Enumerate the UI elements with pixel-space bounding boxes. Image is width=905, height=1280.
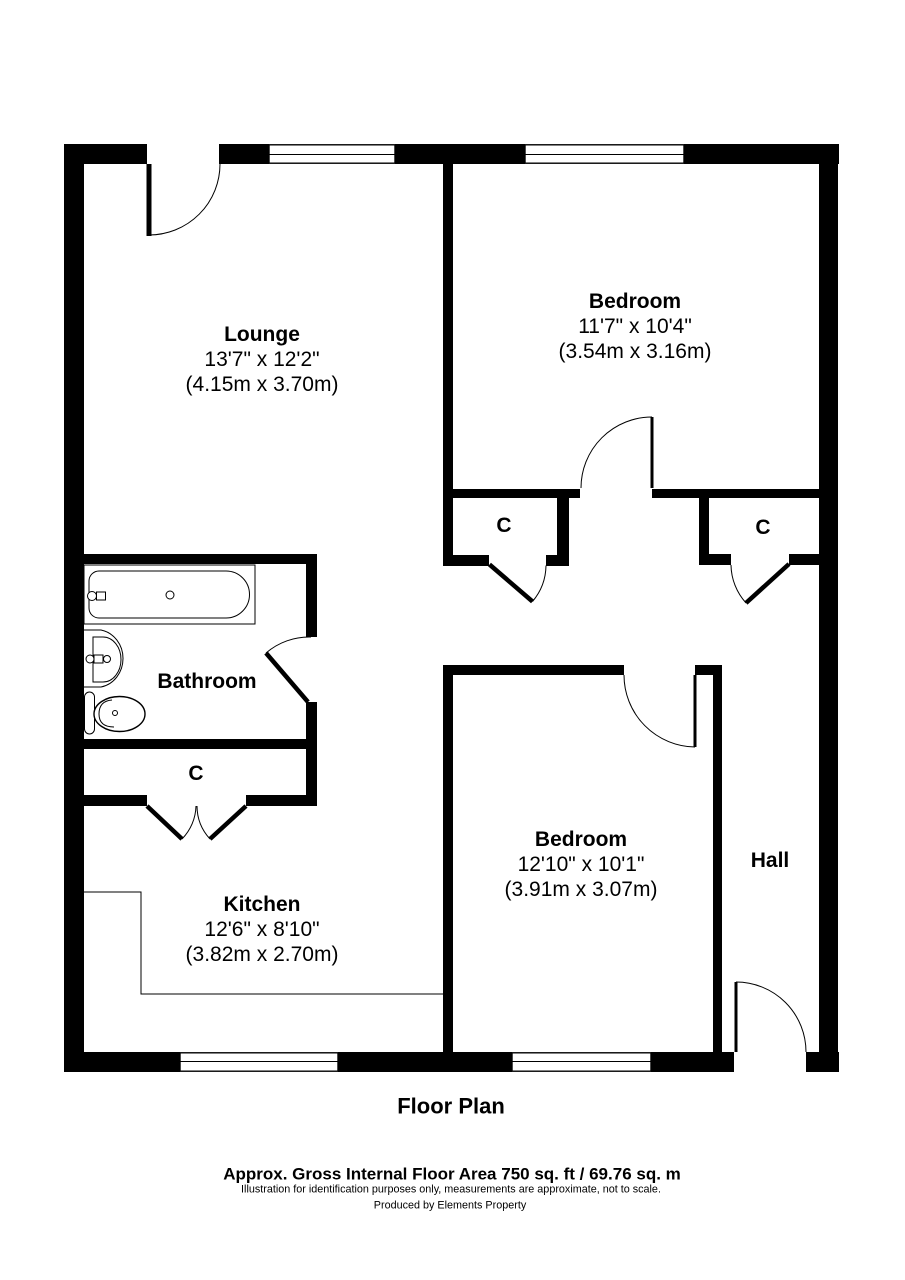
svg-text:13'7" x 12'2": 13'7" x 12'2" xyxy=(204,348,319,371)
svg-text:Approx. Gross Internal Floor A: Approx. Gross Internal Floor Area 750 sq… xyxy=(223,1165,681,1184)
svg-text:Hall: Hall xyxy=(751,849,790,872)
svg-text:Kitchen: Kitchen xyxy=(223,893,300,916)
svg-text:Bathroom: Bathroom xyxy=(157,670,256,693)
svg-text:Floor Plan: Floor Plan xyxy=(397,1094,505,1119)
svg-text:Lounge: Lounge xyxy=(224,323,300,346)
svg-text:Illustration for identificatio: Illustration for identification purposes… xyxy=(241,1184,661,1196)
svg-text:C: C xyxy=(496,514,511,537)
svg-text:(3.82m x 2.70m): (3.82m x 2.70m) xyxy=(186,943,339,966)
svg-text:C: C xyxy=(188,762,203,785)
svg-text:Bedroom: Bedroom xyxy=(589,290,681,313)
svg-text:11'7" x 10'4": 11'7" x 10'4" xyxy=(578,315,692,338)
svg-text:Bedroom: Bedroom xyxy=(535,828,627,851)
svg-text:12'6" x 8'10": 12'6" x 8'10" xyxy=(204,918,319,941)
svg-text:C: C xyxy=(755,516,770,539)
svg-text:Produced by Elements Property: Produced by Elements Property xyxy=(374,1200,527,1212)
svg-text:(4.15m x 3.70m): (4.15m x 3.70m) xyxy=(186,373,339,396)
svg-text:12'10" x 10'1": 12'10" x 10'1" xyxy=(518,853,645,876)
svg-text:(3.54m x 3.16m): (3.54m x 3.16m) xyxy=(559,340,712,363)
svg-text:(3.91m x 3.07m): (3.91m x 3.07m) xyxy=(505,878,658,901)
